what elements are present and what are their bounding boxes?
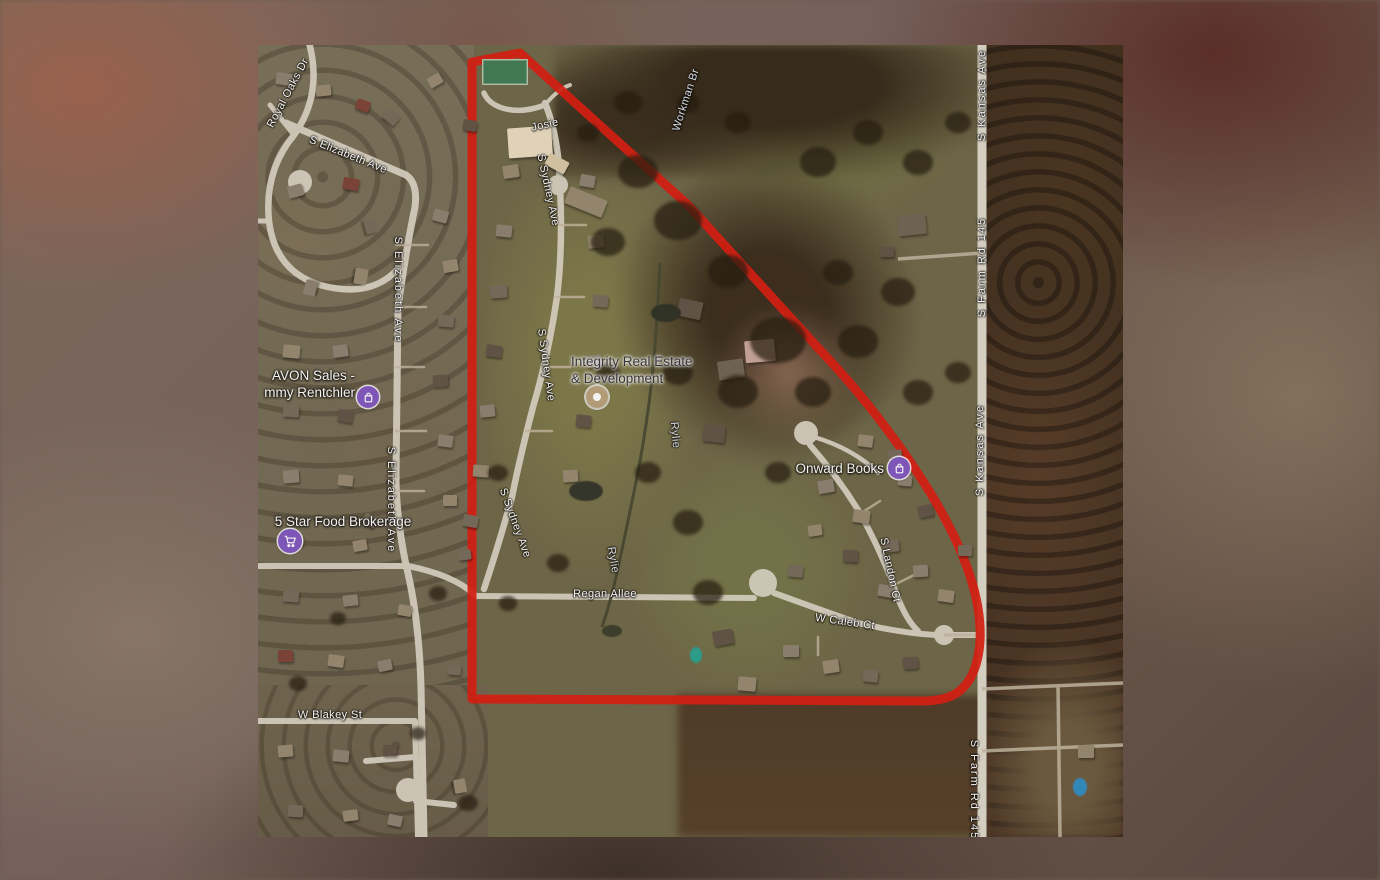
house-roof — [332, 749, 349, 763]
stream-label: Rylie — [605, 546, 621, 574]
house-roof — [502, 164, 520, 179]
house-roof — [958, 545, 972, 556]
tree-canopy — [718, 375, 758, 408]
tree-canopy — [881, 278, 915, 306]
house-roof — [327, 654, 345, 668]
house-roof — [852, 509, 871, 524]
poi-label-onward[interactable]: Onward Books — [724, 460, 884, 477]
house-roof — [283, 405, 300, 418]
road-label: S Elizabeth Ave — [385, 447, 397, 554]
tree-canopy — [800, 147, 836, 177]
house-roof — [278, 650, 293, 662]
house-roof — [437, 434, 454, 448]
house-roof — [937, 589, 955, 603]
house-roof — [807, 524, 822, 537]
house-roof — [1078, 745, 1094, 758]
house-roof — [457, 549, 471, 561]
house-roof — [462, 514, 479, 528]
house-roof — [332, 344, 349, 358]
house-roof — [737, 676, 756, 692]
road-label: S Elizabeth Ave — [392, 237, 404, 344]
house-roof — [438, 314, 455, 327]
house-roof — [473, 464, 490, 477]
house-roof — [353, 267, 369, 285]
house-roof — [783, 645, 799, 657]
house-roof — [315, 84, 331, 97]
tree-canopy — [289, 676, 307, 691]
house-roof — [352, 539, 368, 552]
house-roof — [453, 778, 467, 794]
house-roof — [303, 279, 318, 297]
tree-canopy — [654, 201, 702, 240]
shopping-bag-icon[interactable] — [357, 386, 379, 408]
tree-canopy — [693, 580, 723, 605]
house-roof — [712, 628, 734, 646]
road-label: Regan Allee — [573, 588, 637, 600]
house-roof — [563, 469, 579, 482]
house-roof — [337, 474, 353, 487]
road-label: Josie — [530, 116, 560, 133]
poi-label-avon[interactable]: AVON Sales - mmy Rentchler — [258, 367, 355, 401]
road-label: S Sydney Ave — [497, 487, 533, 560]
tree-canopy — [577, 124, 599, 142]
house-roof — [433, 374, 449, 387]
tree-canopy — [903, 380, 933, 405]
road-label: S Elizabeth Ave — [307, 134, 388, 176]
satellite-map[interactable]: Royal Oaks Dr S Elizabeth Ave S Elizabet… — [258, 45, 1123, 837]
tree-canopy — [458, 795, 478, 811]
house-roof — [387, 814, 403, 828]
terrain-green-field — [688, 55, 968, 225]
house-roof — [903, 656, 919, 669]
tree-canopy — [547, 554, 569, 572]
house-roof — [382, 108, 401, 127]
road-label: W Blakey St — [298, 709, 362, 721]
tree-canopy — [903, 150, 933, 175]
house-roof — [442, 259, 459, 273]
house-roof — [593, 294, 609, 307]
tree-canopy — [330, 612, 346, 625]
house-roof — [897, 214, 927, 237]
tree-canopy — [853, 120, 883, 145]
terrain-field — [678, 695, 988, 837]
house-roof — [342, 594, 358, 607]
tree-canopy — [725, 112, 751, 133]
house-roof — [917, 504, 934, 519]
house-roof — [283, 589, 300, 602]
house-roof — [490, 284, 508, 298]
house-roof — [857, 434, 874, 448]
tree-canopy — [838, 325, 878, 358]
terrain-woods — [982, 45, 1123, 837]
road-label: S Farm Rd 145 — [968, 740, 980, 837]
house-roof — [383, 745, 397, 756]
house-roof — [448, 664, 462, 675]
road-label: S Farm Rd 145 — [976, 217, 988, 318]
house-roof — [575, 414, 591, 428]
road-label: W Caleb Ct — [814, 612, 875, 632]
road-label: Royal Oaks Dr — [265, 56, 312, 129]
pond — [690, 647, 702, 663]
house-roof — [564, 186, 608, 218]
house-roof — [495, 224, 512, 238]
house-roof — [337, 409, 354, 424]
house-roof — [443, 495, 457, 506]
pond — [602, 625, 622, 637]
house-roof — [822, 659, 840, 674]
tree-canopy — [429, 586, 447, 601]
house-roof — [342, 809, 358, 822]
tree-canopy — [945, 112, 971, 133]
pond — [1073, 778, 1087, 796]
house-roof — [862, 669, 878, 683]
house-roof — [913, 564, 929, 577]
tree-canopy — [823, 260, 853, 285]
house-roof — [426, 72, 444, 89]
house-roof — [579, 174, 596, 188]
house-roof — [287, 183, 305, 198]
tree-canopy — [591, 228, 625, 256]
pond — [651, 304, 681, 322]
house-roof — [485, 344, 503, 358]
house-roof — [817, 479, 835, 495]
house-roof — [676, 298, 703, 321]
house-roof — [787, 564, 803, 578]
tree-canopy — [945, 362, 971, 383]
house-roof — [288, 804, 304, 817]
house-roof — [479, 404, 495, 418]
tree-canopy — [673, 510, 703, 535]
house-roof — [282, 344, 300, 358]
poi-label-five-star[interactable]: 5 Star Food Brokerage — [275, 513, 412, 530]
tree-canopy — [795, 377, 831, 407]
house-roof — [377, 659, 393, 673]
house-roof — [355, 98, 372, 113]
house-roof — [702, 424, 726, 443]
poi-label-integrity[interactable]: Integrity Real Estate & Development — [571, 353, 693, 387]
house-roof — [283, 469, 300, 483]
house-roof — [432, 208, 450, 223]
business-dot-icon[interactable] — [586, 386, 608, 408]
tennis-court — [482, 59, 528, 85]
shopping-cart-icon[interactable] — [278, 529, 302, 553]
house-roof — [363, 217, 378, 235]
tree-canopy — [635, 462, 661, 483]
house-roof — [342, 177, 360, 192]
house-roof — [278, 744, 294, 757]
tree-canopy — [618, 155, 658, 188]
shopping-bag-icon[interactable] — [888, 457, 910, 479]
screenshot-stage: Royal Oaks Dr S Elizabeth Ave S Elizabet… — [0, 0, 1380, 880]
road-label: S Kansas Ave — [974, 404, 986, 496]
tree-canopy — [410, 727, 426, 740]
house-roof — [397, 604, 413, 617]
house-roof — [462, 119, 478, 132]
house-roof — [843, 549, 859, 562]
stream-label: Rylie — [668, 421, 682, 448]
pond — [569, 481, 603, 501]
house-roof — [880, 247, 894, 257]
tree-canopy — [708, 255, 748, 288]
road-label: S Sydney Ave — [535, 328, 557, 402]
terrain-field — [982, 605, 1123, 837]
tree-canopy — [750, 317, 806, 363]
tree-canopy — [614, 91, 642, 114]
tree-canopy — [488, 465, 508, 481]
tree-canopy — [499, 596, 517, 611]
road-label: S Kansas Ave — [976, 49, 988, 141]
